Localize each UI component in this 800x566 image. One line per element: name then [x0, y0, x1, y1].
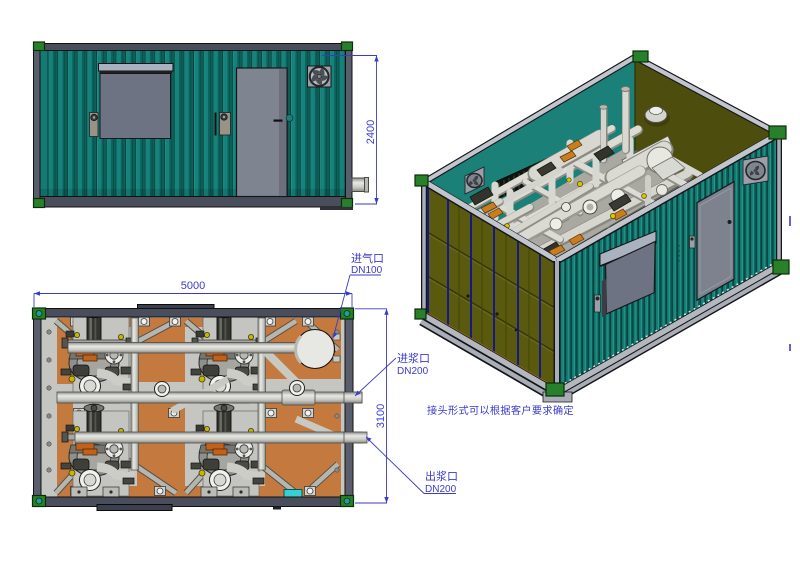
svg-text:DN200: DN200	[397, 366, 429, 377]
svg-text:DN100: DN100	[351, 265, 383, 276]
svg-text:5000: 5000	[181, 280, 205, 292]
svg-text:2400: 2400	[365, 120, 377, 144]
svg-text:3100: 3100	[375, 404, 387, 428]
svg-text:出浆口: 出浆口	[425, 469, 458, 483]
svg-text:进浆口: 进浆口	[397, 351, 430, 365]
svg-text:接头形式可以根据客户要求确定: 接头形式可以根据客户要求确定	[427, 404, 574, 417]
svg-text:进气口: 进气口	[351, 251, 384, 265]
